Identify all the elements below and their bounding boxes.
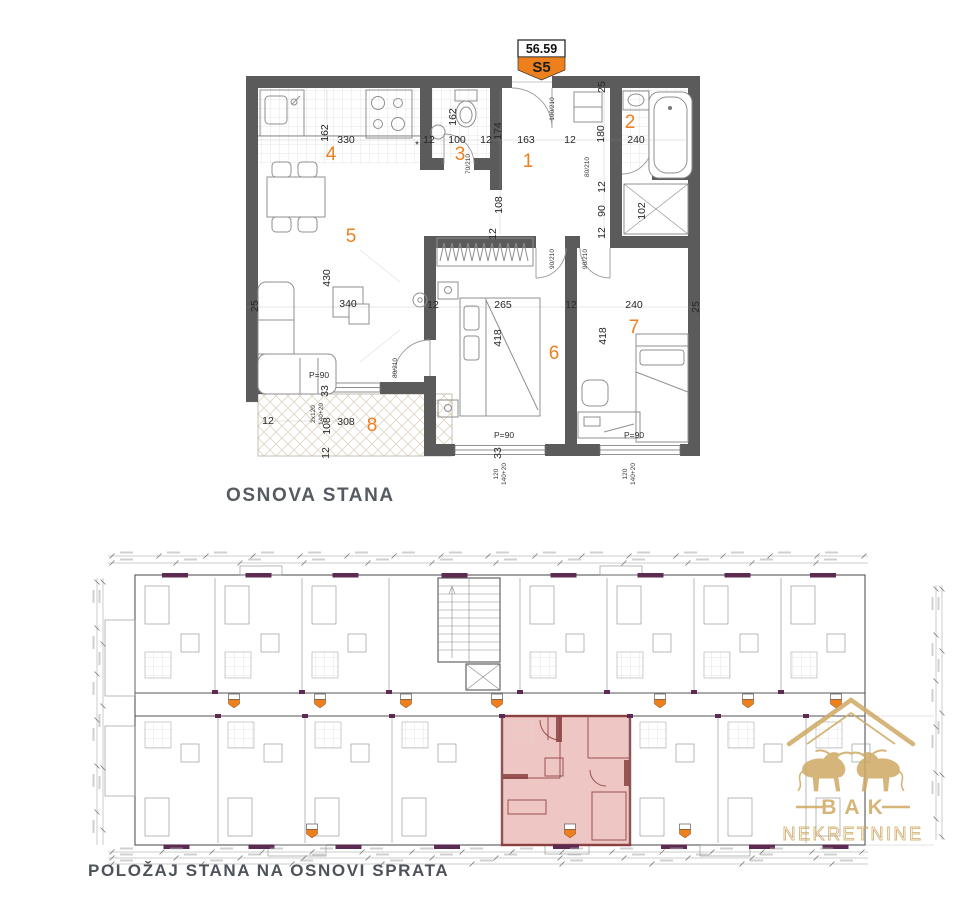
unit-badge [680, 830, 691, 839]
window-accent [442, 573, 468, 578]
corridor-closet [624, 184, 688, 234]
dimension-label: 12 [320, 447, 332, 459]
bedroom6-furniture [437, 238, 540, 417]
window-accent [725, 573, 751, 578]
dimension-label: 340 [339, 298, 357, 310]
door-accent [627, 714, 633, 718]
door-accent [803, 714, 809, 718]
room-number: 4 [326, 144, 337, 165]
dimension-label: 12 [596, 181, 608, 193]
dimension-label: 418 [597, 327, 609, 345]
dimension-label: 90 [596, 205, 608, 217]
unit-bed [225, 586, 249, 624]
door-accent [212, 690, 218, 694]
unit-bathroom [617, 652, 643, 678]
room-number: 8 [367, 415, 378, 436]
door-accent [215, 714, 221, 718]
drawing-sheet: 330162*121001216217416325180240121290121… [0, 0, 954, 900]
door-accent [389, 714, 395, 718]
unit-bed [145, 798, 169, 836]
unit-badge-area [401, 694, 412, 700]
window-accent [336, 845, 362, 850]
room-number: 5 [346, 226, 357, 247]
unit-table [653, 634, 671, 652]
door-accent [778, 690, 784, 694]
dining-table [267, 177, 325, 217]
dimension-label: 180 [595, 125, 607, 143]
unit-badge-area [655, 694, 666, 700]
unit-badge [655, 700, 666, 709]
dimension-label: 12 [564, 134, 576, 146]
door-accent [517, 690, 523, 694]
dimension-label: 430 [321, 269, 333, 287]
unit-badge-area [680, 824, 691, 830]
door-accent [691, 690, 697, 694]
unit-badge [307, 830, 318, 839]
unit-bathroom [145, 722, 171, 748]
unit-badge-area [492, 694, 503, 700]
room-number: 3 [455, 144, 466, 165]
dimension-label: 174 [492, 122, 504, 140]
dimension-label: * [415, 139, 419, 151]
dimension-label: 12 [596, 227, 608, 239]
site-plan-title: POLOŽAJ STANA NA OSNOVI SPRATA [88, 861, 449, 880]
dimension-label: 12 [480, 134, 492, 146]
unit-table [566, 634, 584, 652]
unit-badge [229, 700, 240, 709]
unit-table [676, 744, 694, 762]
door-accent [715, 714, 721, 718]
single-bed [636, 346, 688, 442]
dimension-label: P=90 [309, 370, 329, 380]
door-accent [386, 690, 392, 694]
dimension-label: 25 [249, 300, 261, 312]
door-accent [604, 690, 610, 694]
dimension-label: 330 [337, 134, 355, 146]
living-room-furniture [258, 250, 427, 394]
unit-bed [145, 586, 169, 624]
door-accent [499, 714, 505, 718]
building-floor-plan [94, 553, 945, 867]
dimension-label: 33 [319, 385, 331, 397]
unit-bathroom [704, 652, 730, 678]
dimension-label: 163 [517, 134, 535, 146]
unit-bathroom [791, 652, 817, 678]
dimension-label: 418 [492, 329, 504, 347]
dimension-label: 265 [494, 299, 512, 311]
dimension-label: 80/210 [584, 157, 591, 177]
double-bed [460, 298, 540, 416]
dimension-label: 25 [596, 81, 608, 93]
unit-badge-area [315, 694, 326, 700]
unit-badge [743, 700, 754, 709]
door-accent [302, 714, 308, 718]
dimension-label: 12 [487, 228, 499, 240]
unit-badge [401, 700, 412, 709]
dimension-label: 12 [565, 299, 577, 311]
unit-bed [315, 798, 339, 836]
unit-bed [791, 586, 815, 624]
unit-badge-area [229, 694, 240, 700]
window-accent [246, 573, 272, 578]
unit-bed [228, 798, 252, 836]
unit-badge-area [743, 694, 754, 700]
unit-bathroom [728, 722, 754, 748]
dimension-label: 108 [493, 196, 505, 214]
unit-table [261, 634, 279, 652]
dimension-label: 140+20 [501, 463, 508, 485]
dimension-label: 240 [625, 299, 643, 311]
brand-watermark: BAK NEKRETNINE [782, 700, 923, 844]
dimension-label: 140+20 [630, 463, 637, 485]
unit-bed [640, 798, 664, 836]
unit-bathroom [530, 652, 556, 678]
unit-bed [402, 798, 426, 836]
dimension-label: 100/210 [549, 97, 556, 121]
dimension-label: 162 [447, 108, 459, 126]
unit-table [181, 634, 199, 652]
dimension-label: 120 [622, 468, 629, 479]
window-accent [333, 573, 359, 578]
dimension-label: 162 [319, 124, 331, 142]
unit-bed [704, 586, 728, 624]
dimension-label: 80/210 [392, 358, 399, 378]
door-accent [299, 690, 305, 694]
unit-table [264, 744, 282, 762]
window-accent [434, 845, 460, 850]
terrace-hatch [258, 394, 452, 456]
dimension-label: 12 [423, 134, 435, 146]
room-number: 1 [523, 151, 534, 172]
unit-badge-area [565, 824, 576, 830]
unit-bathroom [315, 722, 341, 748]
room-number: 6 [549, 343, 560, 364]
logo-subtitle: NEKRETNINE [782, 824, 923, 844]
dimension-label: 90/210 [549, 249, 556, 269]
unit-table [764, 744, 782, 762]
unit-bathroom [145, 652, 171, 678]
plan-title: OSNOVA STANA [226, 485, 395, 506]
window-accent [162, 573, 188, 578]
staircase [438, 578, 500, 662]
unit-bathroom [225, 652, 251, 678]
bedroom7-furniture [578, 334, 688, 442]
room-number: 7 [629, 317, 640, 338]
dimension-label: 12 [262, 415, 274, 427]
unit-bathroom [640, 722, 666, 748]
dimension-label: 308 [337, 416, 355, 428]
dimension-label: 70/210 [465, 154, 472, 174]
unit-bed [312, 586, 336, 624]
unit-bathroom [312, 652, 338, 678]
badge-unit-value: S5 [532, 59, 550, 76]
unit-table [181, 744, 199, 762]
apartment-floor-plan: 330162*121001216217416325180240121290121… [246, 40, 702, 485]
unit-table [827, 634, 845, 652]
window-accent [638, 573, 664, 578]
unit-badge [492, 700, 503, 709]
window-accent [551, 573, 577, 578]
unit-table [348, 634, 366, 652]
dimension-label: 2x120 [310, 405, 317, 423]
dimension-label: 140+20 [318, 403, 325, 425]
unit-bed [530, 586, 554, 624]
dimension-label: 102 [636, 202, 648, 220]
unit-table [351, 744, 369, 762]
unit-table [438, 744, 456, 762]
dimension-label: 12 [427, 299, 439, 311]
unit-badge [315, 700, 326, 709]
armchair [582, 380, 608, 406]
badge-area-value: 56.59 [526, 42, 557, 56]
dimension-label: 240 [627, 134, 645, 146]
dimension-label: 33 [492, 447, 504, 459]
unit-table [740, 634, 758, 652]
unit-bathroom [402, 722, 428, 748]
window-accent [810, 573, 836, 578]
bull-icon [798, 750, 851, 791]
roof-icon [789, 700, 913, 744]
room-number: 2 [625, 112, 636, 133]
dimension-label: 120 [493, 468, 500, 479]
unit-badge-s5: 56.59 S5 [518, 40, 565, 80]
unit-bed [728, 798, 752, 836]
unit-bathroom [228, 722, 254, 748]
unit-bed [617, 586, 641, 624]
dimension-label: 90/210 [582, 249, 589, 269]
bull-icon [851, 750, 904, 791]
floor-plan-page: 330162*121001216217416325180240121290121… [0, 0, 954, 900]
dimension-label: P=90 [494, 430, 514, 440]
elevator [466, 664, 500, 690]
unit-badge-area [831, 694, 842, 700]
unit-badge-area [307, 824, 318, 830]
dimension-label: 25 [690, 301, 702, 313]
logo-name: BAK [821, 796, 891, 819]
dimension-label: P=90 [624, 430, 644, 440]
